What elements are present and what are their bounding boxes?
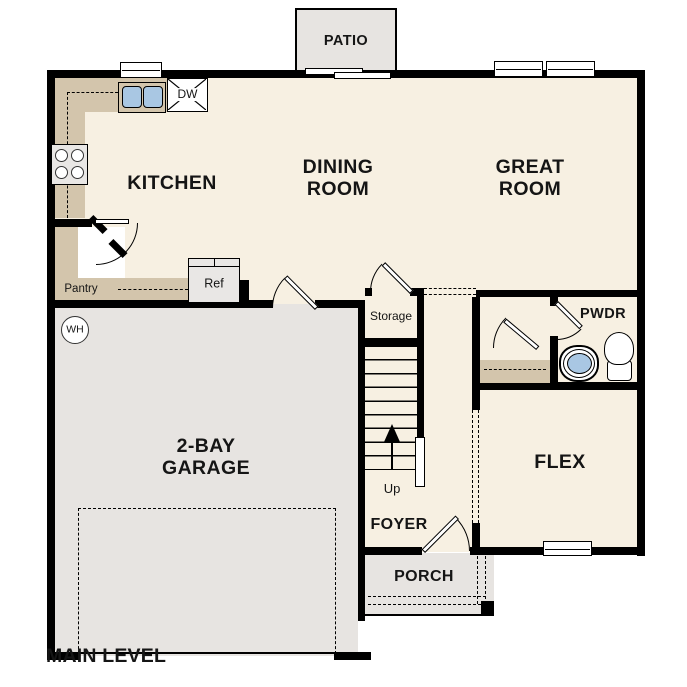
garage-bottom-wall-right-stub: [334, 652, 371, 660]
porch-dash-right-outer: [485, 556, 486, 604]
flex-window: [543, 541, 592, 556]
room-label-flex: FLEX: [518, 452, 602, 474]
hall-opening: [424, 288, 476, 297]
pantry-door: [95, 219, 129, 224]
flex-left-wall-upper: [472, 390, 480, 410]
garage-stair-wall: [358, 300, 365, 621]
kitchen-window: [120, 62, 162, 78]
flex-opening-dash-right: [478, 410, 479, 523]
pedestal-sink-basin: [567, 353, 592, 374]
foyer-bottom-wall: [358, 547, 422, 555]
pantry-top-wall: [47, 219, 92, 227]
burner-icon: [55, 166, 68, 179]
burner-icon: [71, 149, 84, 162]
flex-left-wall-lower: [472, 523, 480, 555]
sink-basin-left: [122, 86, 142, 108]
counter-dashline-bottom: [118, 289, 188, 290]
plan-title: MAIN LEVEL: [46, 646, 246, 668]
room-label-kitchen: KITCHEN: [110, 173, 234, 195]
range-stove: [51, 144, 88, 185]
pedestal-sink: [559, 345, 599, 382]
refrigerator: Ref: [188, 258, 240, 303]
room-label-porch: PORCH: [386, 568, 462, 586]
room-label-pwdr: PWDR: [570, 306, 636, 322]
hall-left-wall: [472, 290, 480, 390]
refrigerator-door-split: [214, 259, 215, 266]
pwdr-closet-divider: [550, 336, 558, 384]
water-heater-label: WH: [66, 324, 84, 335]
porch-edge-line: [358, 614, 494, 616]
stairs-up-label: Up: [378, 482, 406, 496]
room-label-great: GREAT ROOM: [468, 157, 592, 201]
greatroom-south-wall: [476, 290, 640, 297]
room-label-dining: DINING ROOM: [278, 157, 398, 201]
pwdr-bottom-wall: [472, 382, 645, 390]
refrigerator-label: Ref: [204, 277, 223, 290]
closet-shelf: [480, 360, 550, 383]
garage-door-apron: [78, 508, 336, 654]
stair-handrail: [415, 437, 425, 487]
room-label-pantry: Pantry: [55, 283, 107, 295]
hall-opening-dash-top: [424, 288, 476, 289]
flex-opening-dash-left: [472, 410, 473, 523]
counter-dashline-top: [67, 92, 118, 93]
burner-icon: [55, 149, 68, 162]
dishwasher-label: DW: [176, 88, 200, 101]
room-label-garage: 2-BAY GARAGE: [148, 436, 264, 480]
water-heater: WH: [61, 316, 89, 344]
room-label-storage: Storage: [362, 310, 420, 323]
sink-basin-right: [143, 86, 163, 108]
room-label-patio: PATIO: [295, 33, 397, 49]
burner-icon: [71, 166, 84, 179]
greatroom-window-left: [494, 61, 543, 77]
greatroom-window-right: [546, 61, 595, 77]
hall-opening-dash-bottom: [424, 294, 476, 295]
closet-rod-dashline: [484, 369, 546, 370]
exterior-wall-right: [637, 70, 645, 556]
porch-dash-bottom: [368, 604, 486, 605]
patio-door-panel-right: [334, 72, 391, 79]
floor-plan-canvas: DW Ref WH: [0, 0, 687, 687]
stair-direction-line: [391, 441, 393, 469]
room-label-foyer: FOYER: [366, 516, 432, 534]
porch-dash-right-inner: [477, 556, 478, 604]
ref-side-wall-stub: [240, 280, 249, 302]
storage-stair-divider: [358, 338, 424, 347]
dishwasher: DW: [167, 78, 208, 112]
porch-post: [481, 601, 494, 614]
stair-up-arrow-icon: [384, 424, 400, 442]
toilet-bowl: [604, 332, 634, 365]
porch-dash-top: [368, 596, 486, 597]
refrigerator-door-line: [189, 266, 239, 267]
